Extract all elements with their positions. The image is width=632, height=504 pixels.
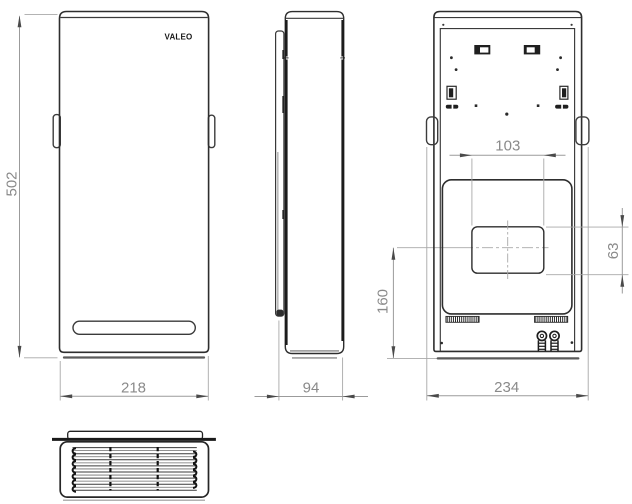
svg-text:160: 160 — [375, 289, 392, 314]
svg-text:103: 103 — [495, 138, 520, 155]
svg-text:234: 234 — [494, 379, 519, 396]
svg-text:VALEO: VALEO — [165, 33, 193, 42]
svg-text:218: 218 — [121, 379, 146, 396]
svg-text:94: 94 — [303, 379, 320, 396]
svg-text:63: 63 — [605, 243, 622, 260]
svg-text:502: 502 — [4, 171, 21, 196]
